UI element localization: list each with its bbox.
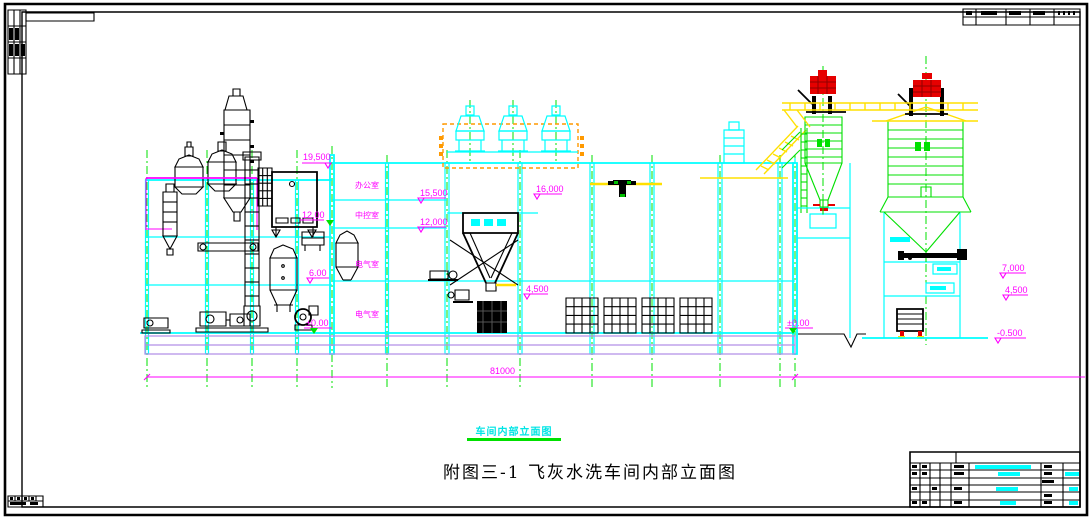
elevation-0-right: ±0.00 — [787, 318, 809, 328]
room-label-office: 办公室 — [355, 180, 379, 190]
elevation-6000: 6.00 — [309, 268, 327, 278]
silo-2 — [862, 73, 988, 339]
corner-table-bottom-left — [8, 496, 43, 507]
lattice-tower — [258, 168, 272, 206]
elevation-marker: 7,000 — [1000, 263, 1026, 278]
elevation-4500-right: 4,500 — [1005, 285, 1028, 295]
grid-rack — [680, 298, 712, 333]
view-label-group: 车间内部立面图 — [467, 425, 561, 441]
drawing-sheet: 81000 — [0, 0, 1092, 519]
elevation-marker: 4,500 — [524, 284, 549, 299]
mezzanine-pump — [428, 271, 458, 281]
elevation-marker: 4,500 — [1003, 285, 1028, 300]
bag-filter-box — [272, 172, 317, 237]
elevation-marker: 19,500 — [302, 152, 331, 168]
reactor-vessel — [270, 245, 297, 312]
dimension-81000: 81000 — [490, 366, 515, 376]
elevation-marker: ±0.00 — [304, 318, 332, 334]
elevation-marker: ±0.00 — [785, 318, 813, 334]
elevation-7000: 7,000 — [1002, 263, 1025, 273]
scrubber-column — [220, 89, 254, 221]
ground-grid-racks — [566, 298, 712, 333]
room-label-electrical-1: 电气室 — [355, 259, 379, 269]
roof-structures — [700, 122, 807, 213]
roof-mixers — [439, 106, 584, 168]
dimension-line: 81000 — [144, 366, 1085, 380]
elevation-15500: 15,500 — [420, 188, 448, 198]
elevation-marker: 15,500 — [418, 188, 448, 203]
small-skid — [142, 318, 170, 333]
monorail-hoist — [590, 180, 662, 197]
room-labels: 办公室 中控室 电气室 电气室 — [355, 180, 379, 319]
ground-trench — [798, 334, 866, 347]
grid-rack — [642, 298, 674, 333]
grid-rack — [566, 298, 598, 333]
elevation-4500-mid: 4,500 — [526, 284, 549, 294]
elevation-19500: 19,500 — [303, 152, 331, 162]
tall-bay-vessel — [336, 231, 358, 280]
grid-rack — [604, 298, 636, 333]
elevation-16000: 16,000 — [536, 184, 564, 194]
view-label: 车间内部立面图 — [476, 425, 553, 438]
central-hopper — [448, 213, 518, 333]
drawing-canvas: 81000 — [0, 0, 1092, 519]
corner-table-top-left — [8, 10, 26, 74]
bucket-elevator-small — [163, 184, 177, 255]
elevation-12000-left: 12,00 — [302, 210, 325, 220]
elevation-marker: 6.00 — [307, 268, 329, 283]
main-title: 附图三-1 飞灰水洗车间内部立面图 — [443, 463, 737, 483]
foundation-band — [145, 336, 795, 354]
title-block — [910, 452, 1080, 507]
elevation-0-left: ±0.00 — [306, 318, 328, 328]
column-centerlines — [147, 56, 926, 388]
drawing-number-strip — [26, 13, 94, 21]
elevation-marker: 16,000 — [534, 184, 564, 199]
elevation-12000: 12,000 — [420, 217, 448, 227]
elevation-marker: -0.500 — [995, 328, 1026, 343]
room-label-control: 中控室 — [355, 210, 379, 220]
elevation-minus-500: -0.500 — [997, 328, 1023, 338]
room-label-electrical-2: 电气室 — [355, 309, 379, 319]
elevation-marker: 12,000 — [418, 217, 448, 232]
